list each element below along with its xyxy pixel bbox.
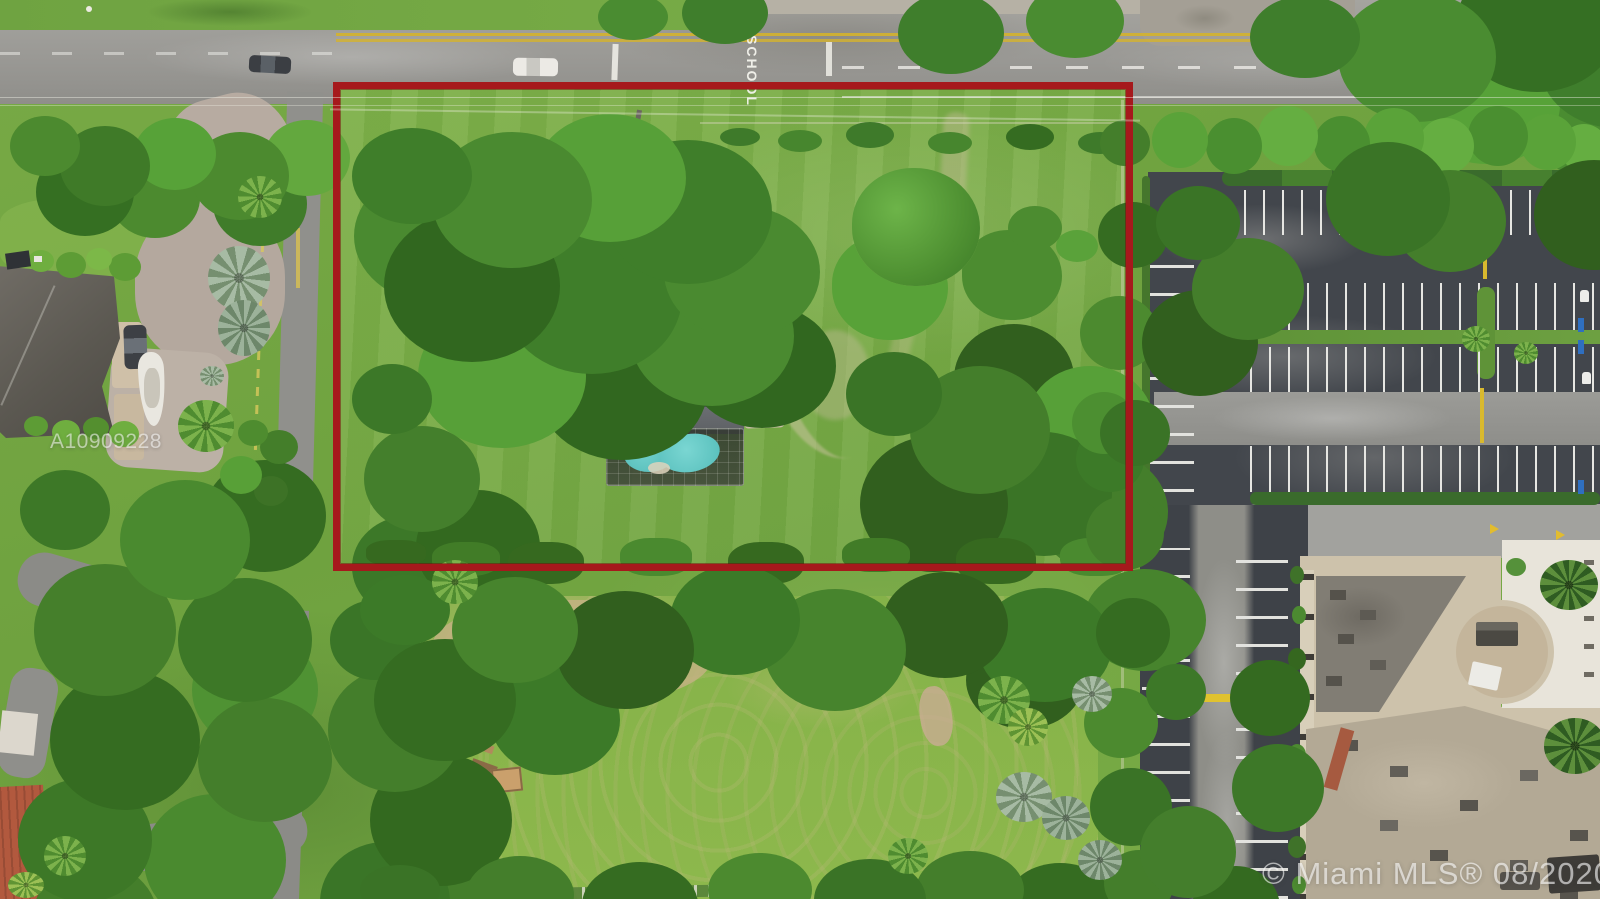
yellow-center-line	[336, 39, 1600, 42]
boat-deck	[144, 368, 160, 408]
parking-stall-row	[1250, 446, 1600, 492]
yellow-curb-marking	[1480, 388, 1484, 443]
listing-id-watermark: A10909228	[50, 430, 162, 454]
palm-tree	[44, 836, 86, 876]
car-silver	[1385, 69, 1430, 89]
small-roof	[0, 710, 38, 756]
power-line	[0, 105, 1600, 106]
car-white-van	[513, 58, 558, 77]
parking-stall-row	[1148, 264, 1194, 492]
tree-row	[1152, 112, 1208, 168]
accessible-parking-icon	[1582, 372, 1591, 384]
parking-hedge	[1142, 176, 1150, 496]
agave-plant	[200, 366, 224, 386]
small-structure	[34, 256, 42, 262]
blue-truck	[90, 745, 117, 793]
palm-tree	[1540, 560, 1598, 610]
rooftop-ac-unit	[1476, 622, 1518, 646]
power-line	[0, 97, 1600, 98]
garden-shrubs	[238, 420, 268, 446]
sign-post	[86, 6, 92, 12]
utility-pole	[1118, 578, 1132, 583]
property-boundary-outline	[333, 82, 1133, 571]
parking-stall-row	[1244, 190, 1600, 235]
tree-canopy	[1146, 664, 1206, 720]
tree-canopy	[1156, 186, 1240, 260]
accessible-parking-icon	[1580, 290, 1589, 302]
gravel-shoulder	[758, 0, 1160, 14]
road-marking-bar	[611, 44, 618, 80]
mls-copyright-watermark: © Miami MLS® 08/2020	[1262, 856, 1600, 892]
excavator-cab	[526, 716, 536, 726]
yellow-curb-marking	[1483, 232, 1487, 279]
pavement-arrow-icon	[1556, 530, 1565, 540]
parking-hedge	[1222, 170, 1600, 186]
drive-aisle	[1154, 392, 1600, 445]
palm-tree	[1462, 326, 1490, 352]
car-dark	[249, 55, 292, 74]
aerial-photo-canvas: SCHOOL	[0, 0, 1600, 899]
palm-tree	[238, 176, 282, 218]
landscape-median	[1250, 330, 1600, 344]
yellow-center-line	[336, 33, 1600, 36]
palm-tree	[1544, 718, 1600, 774]
pavement-arrow-icon	[1490, 524, 1499, 534]
shrub-row	[24, 416, 48, 436]
street-edge-stripe	[296, 228, 300, 288]
accessible-stall-stripe	[1578, 340, 1584, 354]
parking-stall-row	[1236, 560, 1288, 899]
pallet	[491, 766, 523, 793]
road-marking-bar	[826, 42, 832, 76]
planter	[1506, 558, 1526, 576]
lane-dash-line	[842, 66, 1600, 69]
tree-canopy	[20, 470, 110, 550]
palm-tree	[1008, 708, 1048, 746]
dirt-patch	[432, 600, 712, 704]
parking-stall-row	[1250, 283, 1600, 330]
accessible-stall-stripe	[1578, 480, 1584, 494]
parking-hedge	[1250, 492, 1600, 505]
tree-canopy	[10, 116, 80, 176]
neighbor-house-roof	[0, 266, 120, 438]
hedge-row	[1290, 566, 1304, 584]
parking-stall-row	[1250, 347, 1600, 392]
white-van	[1240, 776, 1278, 796]
palm-tree	[8, 872, 44, 898]
silver-palm	[218, 300, 270, 356]
palm-tree	[1514, 342, 1538, 364]
rooftop-ac-units	[1330, 590, 1346, 600]
silver-palm	[1072, 676, 1112, 712]
parked-vehicle	[5, 250, 31, 269]
silver-palm	[1042, 796, 1090, 840]
accessible-stall-stripe	[1578, 318, 1584, 332]
palm-tree	[178, 400, 234, 452]
lane-dash-line	[0, 52, 336, 55]
neighborhood-road	[11, 546, 170, 639]
agave-plant	[1078, 840, 1122, 880]
palm-tree	[888, 838, 928, 874]
